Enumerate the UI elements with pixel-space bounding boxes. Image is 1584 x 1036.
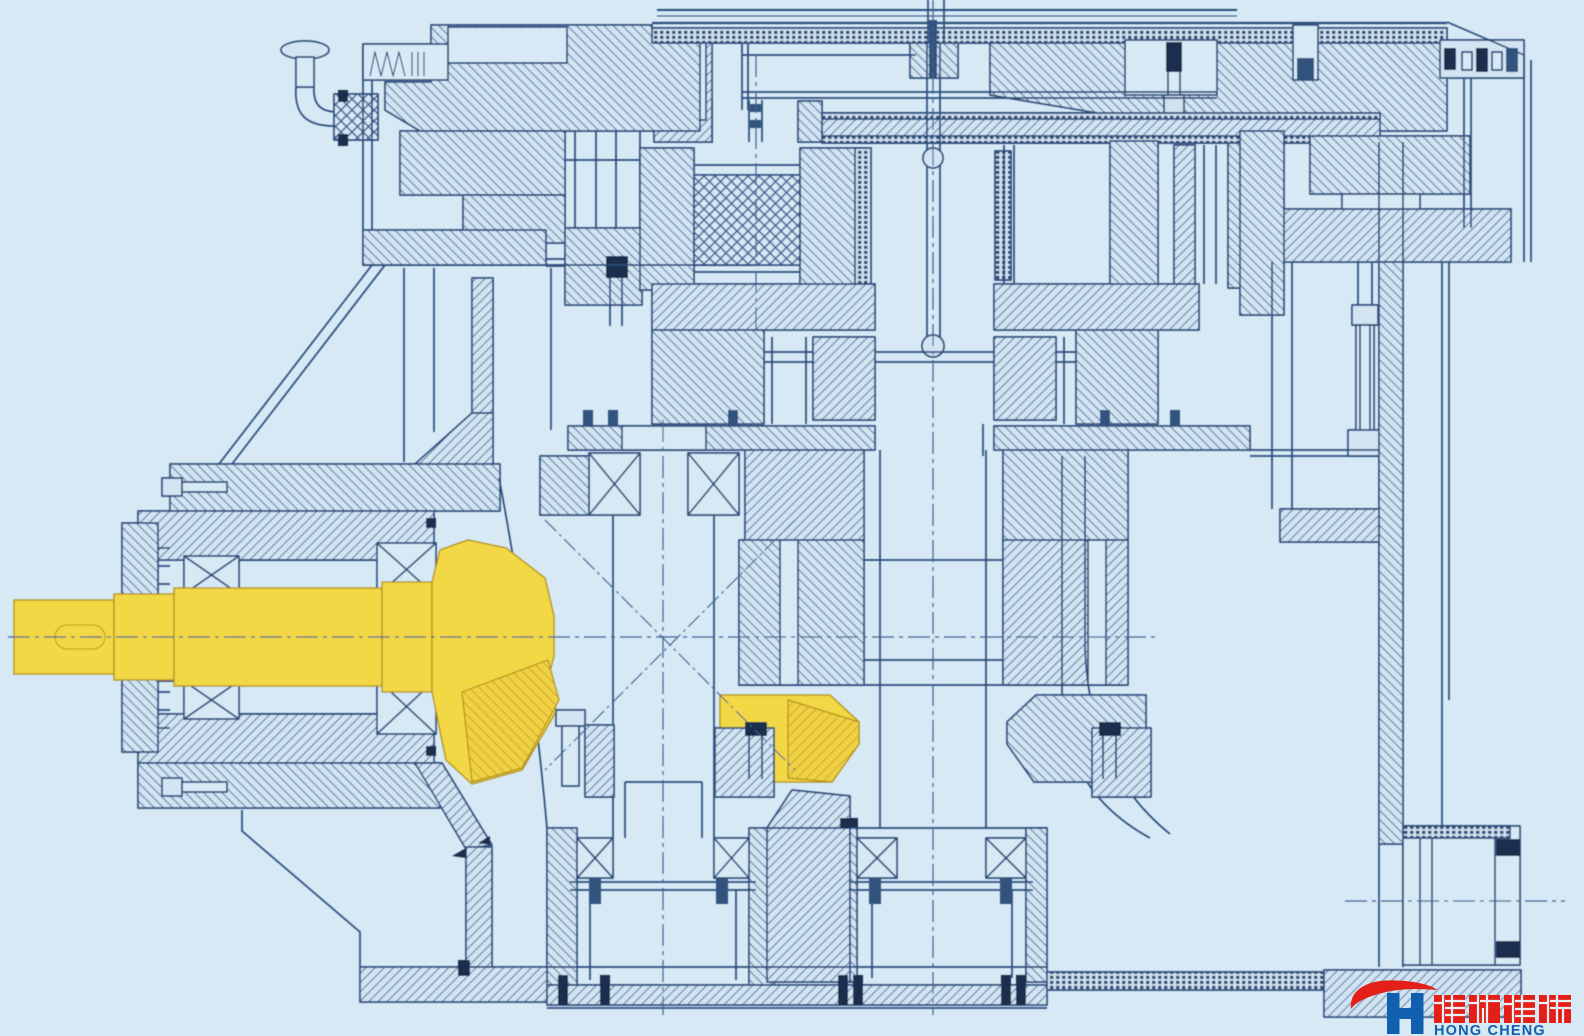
- svg-text:HONG CHENG: HONG CHENG: [1434, 1023, 1546, 1036]
